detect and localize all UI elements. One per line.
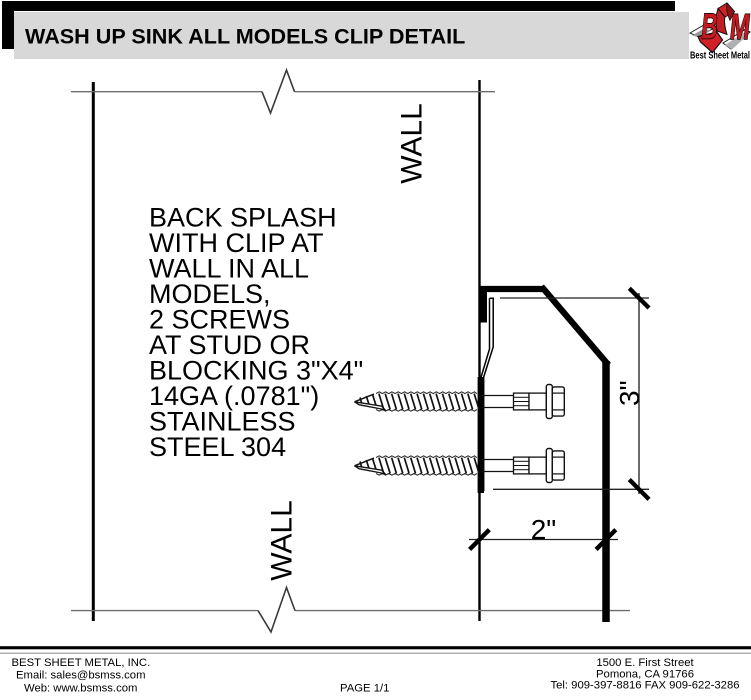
svg-text:2": 2" bbox=[531, 514, 557, 545]
svg-text:Pomona, CA 91766: Pomona, CA 91766 bbox=[596, 668, 694, 680]
svg-text:Best Sheet Metal: Best Sheet Metal bbox=[690, 51, 750, 62]
svg-text:Email: sales@bsmss.com: Email: sales@bsmss.com bbox=[16, 670, 145, 682]
svg-text:3": 3" bbox=[614, 380, 645, 406]
svg-text:PAGE 1/1: PAGE 1/1 bbox=[340, 682, 389, 694]
svg-text:WALL: WALL bbox=[396, 103, 429, 184]
svg-text:BEST SHEET METAL, INC.: BEST SHEET METAL, INC. bbox=[12, 657, 151, 669]
svg-text:WALL: WALL bbox=[266, 500, 299, 581]
svg-text:1500 E. First Street: 1500 E. First Street bbox=[596, 657, 694, 669]
svg-text:Web: www.bsmss.com: Web: www.bsmss.com bbox=[24, 682, 137, 694]
svg-text:M: M bbox=[728, 7, 751, 47]
svg-text:WASH UP SINK ALL MODELS CLIP D: WASH UP SINK ALL MODELS CLIP DETAIL bbox=[25, 24, 465, 49]
svg-text:Tel: 909-397-8816 FAX 909-622-: Tel: 909-397-8816 FAX 909-622-3286 bbox=[550, 680, 739, 692]
svg-text:STEEL 304: STEEL 304 bbox=[149, 432, 286, 462]
